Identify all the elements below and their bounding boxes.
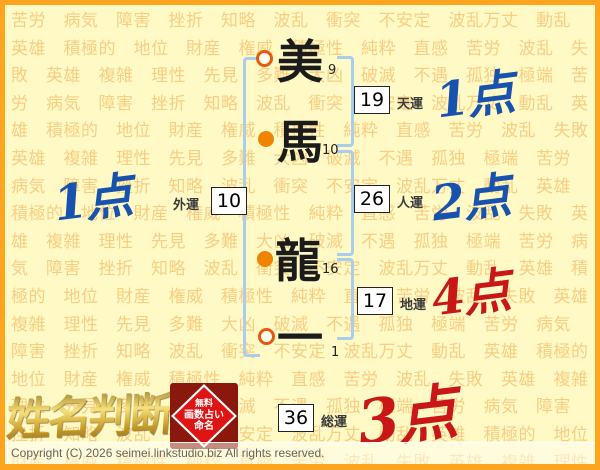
seimei-result-page: 苦労 病気 障害 挫折 知略 波乱 衝突 不安定 波乱万丈 動乱 英雄 積極的 … xyxy=(0,0,600,470)
chiun-value-box: 17 xyxy=(357,287,393,315)
chiun-label: 地運 xyxy=(400,294,426,313)
gaiun-value-box: 10 xyxy=(211,187,247,215)
result-canvas: 苦労 病気 障害 挫折 知略 波乱 衝突 不安定 波乱万丈 動乱 英雄 積極的 … xyxy=(5,5,595,464)
gaiun-label: 外運 xyxy=(173,194,199,213)
site-logo[interactable]: 姓名判断 xyxy=(5,378,173,448)
tenun-score: 1点 xyxy=(431,53,516,132)
jinun-value-box: 26 xyxy=(354,185,390,213)
stroke-count: 16 xyxy=(322,262,339,277)
tenun-label: 天運 xyxy=(397,93,423,112)
copyright-text: Copyright (C) 2026 seimei.linkstudio.biz… xyxy=(11,446,324,460)
chiun-bracket xyxy=(337,258,354,340)
tenun-bracket xyxy=(337,56,354,147)
stamp-line: 命名 xyxy=(194,421,214,433)
name-character: 龍 xyxy=(275,238,321,284)
gaiun-score: 1点 xyxy=(49,156,134,235)
free-naming-stamp-icon: 無料 画数占い 命名 xyxy=(170,383,238,449)
stamp-line: 画数占い xyxy=(184,410,224,422)
jinun-score: 2点 xyxy=(427,156,512,235)
chiun-score: 4点 xyxy=(427,251,512,330)
jinun-bracket xyxy=(337,150,354,256)
jinun-label: 人運 xyxy=(397,192,423,211)
name-character: 一 xyxy=(277,315,323,361)
souun-value-box: 36 xyxy=(278,404,314,432)
stroke-count: 1 xyxy=(331,345,339,360)
stroke-count: 10 xyxy=(322,143,339,158)
tenun-value-box: 19 xyxy=(354,86,390,114)
name-character: 美 xyxy=(277,39,323,85)
footer-strip: Copyright (C) 2026 seimei.linkstudio.biz… xyxy=(5,442,595,464)
stamp-line: 無料 xyxy=(195,399,213,409)
stroke-marker-icon xyxy=(257,251,273,267)
stroke-count: 9 xyxy=(328,63,336,78)
stroke-marker-icon xyxy=(258,131,274,147)
name-character: 馬 xyxy=(277,119,323,165)
stamp-text: 無料 画数占い 命名 xyxy=(170,383,238,449)
stroke-marker-icon xyxy=(258,328,275,345)
stroke-marker-icon xyxy=(256,50,273,67)
souun-label: 総運 xyxy=(321,411,347,430)
